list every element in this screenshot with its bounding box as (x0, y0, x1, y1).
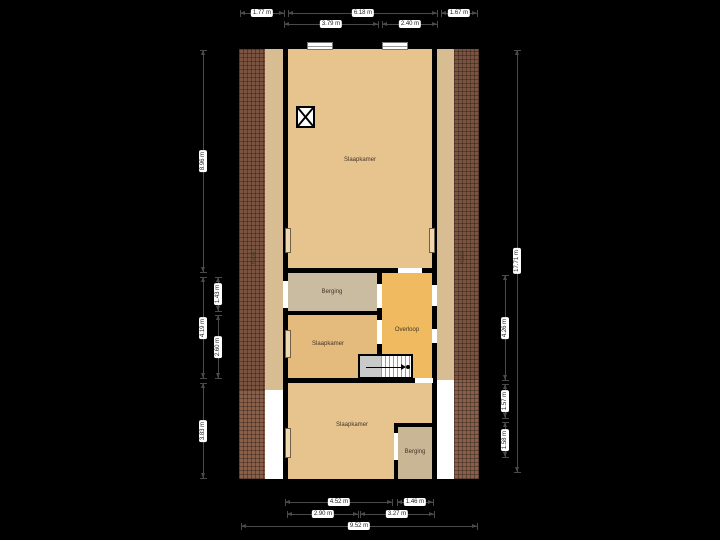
measure-tick (514, 472, 521, 473)
measure-tick (240, 10, 241, 17)
measure-tick (285, 499, 286, 506)
measure-tick (433, 499, 434, 506)
measure-tick (284, 10, 285, 17)
measurement-label: 17.71 m (513, 248, 521, 274)
measure-tick (477, 523, 478, 530)
measure-tick (382, 21, 383, 28)
measure-tick (288, 10, 289, 17)
measure-tick (215, 311, 222, 312)
measure-tick (437, 21, 438, 28)
measure-tick (200, 277, 207, 278)
measurement-label: 1.57 m (501, 390, 509, 412)
measurement-label: 4.52 m (328, 498, 350, 506)
measurement-label: 4.26 m (501, 317, 509, 339)
measurement-label: 3.83 m (199, 420, 207, 442)
measure-tick (502, 418, 509, 419)
measurements-layer: 1.77 m6.18 m1.67 m3.79 m2.40 m4.52 m1.46… (0, 0, 720, 540)
measure-tick (284, 21, 285, 28)
measure-tick (287, 511, 288, 518)
measure-tick (397, 499, 398, 506)
measure-tick (200, 50, 207, 51)
measure-tick (502, 384, 509, 385)
measure-tick (437, 10, 438, 17)
measurement-label: 4.19 m (199, 317, 207, 339)
measure-tick (360, 511, 361, 518)
measurement-label: 3.27 m (386, 510, 408, 518)
measure-tick (241, 523, 242, 530)
measurement-label: 1.58 m (501, 429, 509, 451)
measurement-label: 1.43 m (214, 283, 222, 305)
measure-tick (502, 457, 509, 458)
measure-tick (502, 380, 509, 381)
measure-tick (378, 21, 379, 28)
measure-tick (502, 275, 509, 276)
measurement-label: 2.90 m (312, 510, 334, 518)
measurement-label: 1.46 m (404, 498, 426, 506)
measure-tick (358, 511, 359, 518)
floorplan-canvas: SlaapkamerBergingSlaapkamerOverloopSlaap… (0, 0, 720, 540)
measure-tick (215, 277, 222, 278)
measure-tick (215, 378, 222, 379)
measure-tick (434, 511, 435, 518)
measure-tick (514, 50, 521, 51)
measure-tick (477, 10, 478, 17)
measurement-label: 1.67 m (448, 9, 470, 17)
measure-tick (200, 378, 207, 379)
measure-tick (502, 422, 509, 423)
measure-tick (392, 499, 393, 506)
measure-tick (215, 315, 222, 316)
measurement-label: 9.52 m (348, 522, 370, 530)
measurement-label: 1.77 m (251, 9, 273, 17)
measurement-label: 2.40 m (399, 20, 421, 28)
measure-tick (200, 383, 207, 384)
measure-tick (200, 478, 207, 479)
measure-tick (441, 10, 442, 17)
measurement-label: 8.96 m (199, 150, 207, 172)
measure-tick (200, 272, 207, 273)
measurement-label: 2.60 m (214, 336, 222, 358)
measurement-label: 6.18 m (352, 9, 374, 17)
measurement-label: 3.79 m (320, 20, 342, 28)
